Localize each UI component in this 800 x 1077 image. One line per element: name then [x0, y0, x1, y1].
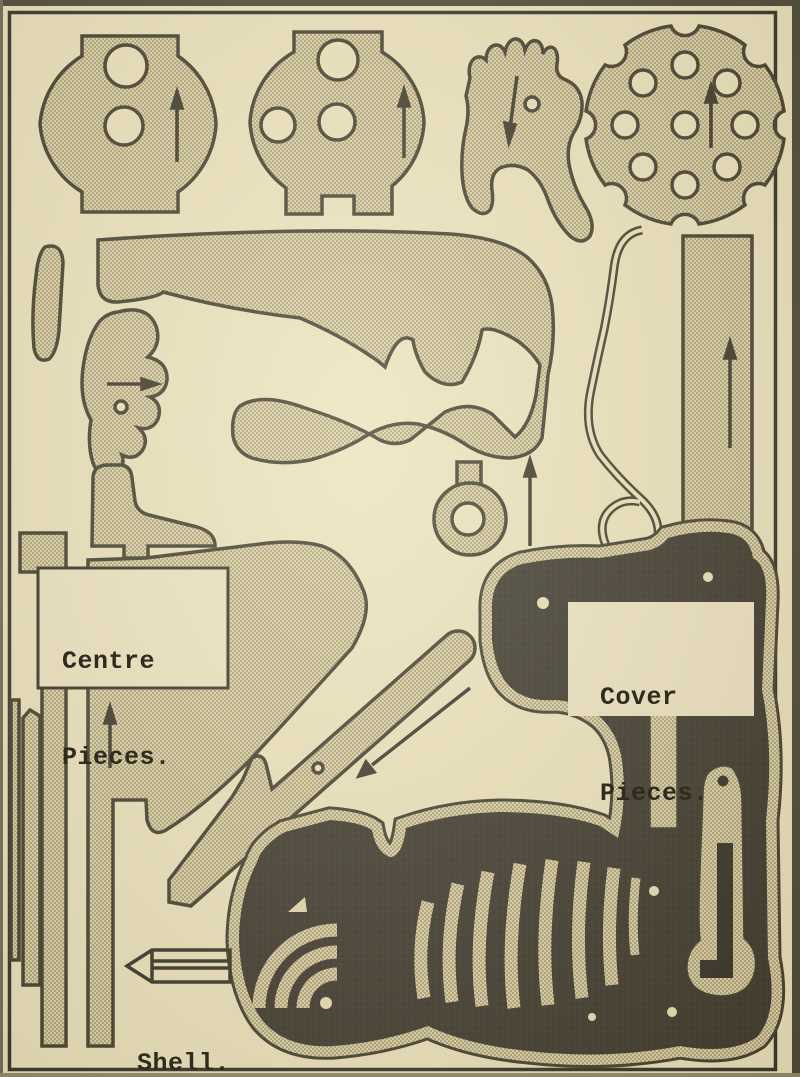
- pattern-sheet-drawing: [0, 0, 800, 1077]
- cover-pieces-label-line1: Cover: [600, 682, 709, 714]
- cover-pieces-label-line2: Pieces.: [600, 778, 709, 810]
- hole: [105, 107, 143, 145]
- centre-pieces-label-line1: Centre: [62, 646, 171, 678]
- pawl-blank: [82, 310, 167, 475]
- hole: [313, 763, 323, 773]
- frame-strip: [23, 710, 40, 985]
- shell-label: Shell.: [137, 984, 230, 1077]
- curved-spacer-bar: [33, 246, 63, 360]
- cylinder-holes: [612, 52, 758, 198]
- grip-stripe-short: [633, 878, 636, 955]
- pattern-sheet-page: Centre Pieces. Cover Pieces. Shell.: [0, 0, 800, 1077]
- mainspring-wire: [588, 230, 658, 560]
- hole: [718, 776, 729, 787]
- frame-strip: [11, 700, 19, 960]
- heel-block: [92, 465, 215, 558]
- centre-pieces-label-line2: Pieces.: [62, 742, 171, 774]
- hole: [452, 503, 484, 535]
- hammer-blank: [462, 39, 592, 241]
- centre-pieces-label: Centre Pieces.: [62, 582, 171, 806]
- shell-bullet-outline: [127, 950, 230, 982]
- hole: [525, 97, 539, 111]
- hole: [318, 40, 358, 80]
- arrow-up-icon: [525, 460, 535, 546]
- hole: [261, 108, 295, 142]
- hole: [105, 45, 147, 87]
- hole: [115, 401, 127, 413]
- frame-blank: [98, 231, 553, 463]
- hole: [319, 104, 355, 140]
- shell-label-text: Shell.: [137, 1048, 230, 1077]
- cover-pieces-label: Cover Pieces.: [600, 618, 709, 842]
